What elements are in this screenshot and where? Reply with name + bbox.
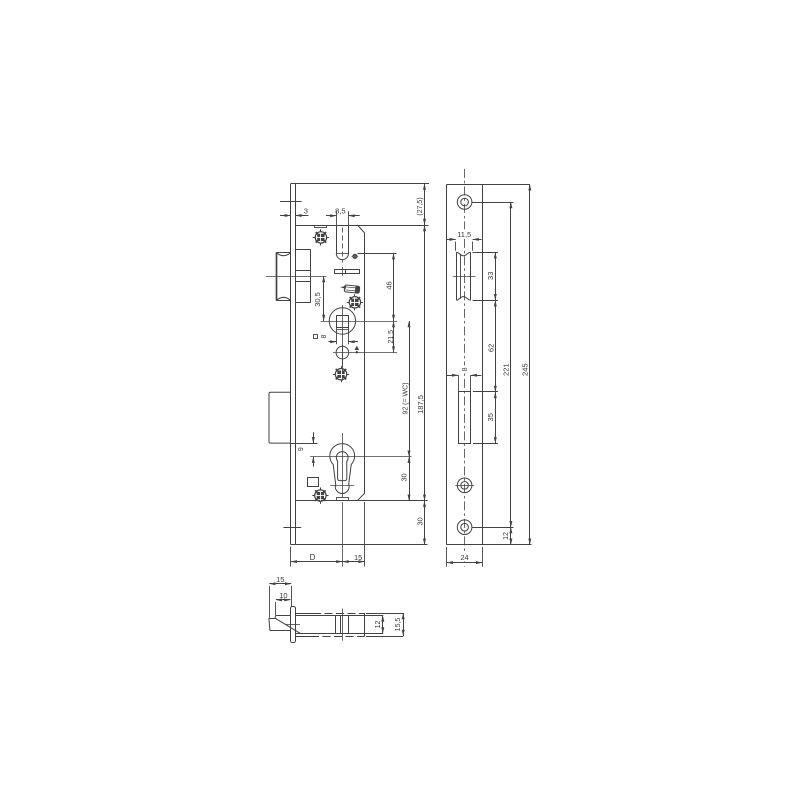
svg-text:30,5: 30,5	[313, 292, 322, 307]
svg-text:8: 8	[321, 334, 328, 338]
svg-text:30: 30	[400, 473, 409, 481]
svg-text:9: 9	[298, 447, 305, 451]
svg-text:245: 245	[521, 363, 530, 376]
svg-text:11,5: 11,5	[457, 230, 471, 239]
svg-text:8: 8	[462, 367, 469, 371]
svg-text:35: 35	[486, 413, 495, 421]
svg-text:12: 12	[503, 532, 510, 540]
svg-text:8,5: 8,5	[335, 207, 345, 216]
svg-text:187,5: 187,5	[416, 395, 425, 414]
svg-text:92 (= WC): 92 (= WC)	[403, 382, 410, 414]
svg-text:21,5: 21,5	[388, 330, 395, 344]
svg-text:33: 33	[486, 272, 495, 280]
svg-text:15: 15	[354, 553, 362, 562]
svg-text:62: 62	[486, 344, 495, 352]
svg-text:30: 30	[416, 517, 425, 525]
svg-text:10: 10	[279, 591, 287, 600]
svg-text:46: 46	[384, 281, 393, 289]
svg-text:15,5: 15,5	[395, 618, 402, 632]
svg-text:24: 24	[460, 553, 468, 562]
svg-text:15: 15	[276, 575, 284, 584]
svg-text:221: 221	[502, 363, 511, 376]
svg-text:3: 3	[304, 207, 308, 216]
svg-text:D: D	[310, 553, 316, 562]
svg-text:(27,5): (27,5)	[417, 197, 424, 215]
svg-text:12: 12	[375, 621, 382, 629]
